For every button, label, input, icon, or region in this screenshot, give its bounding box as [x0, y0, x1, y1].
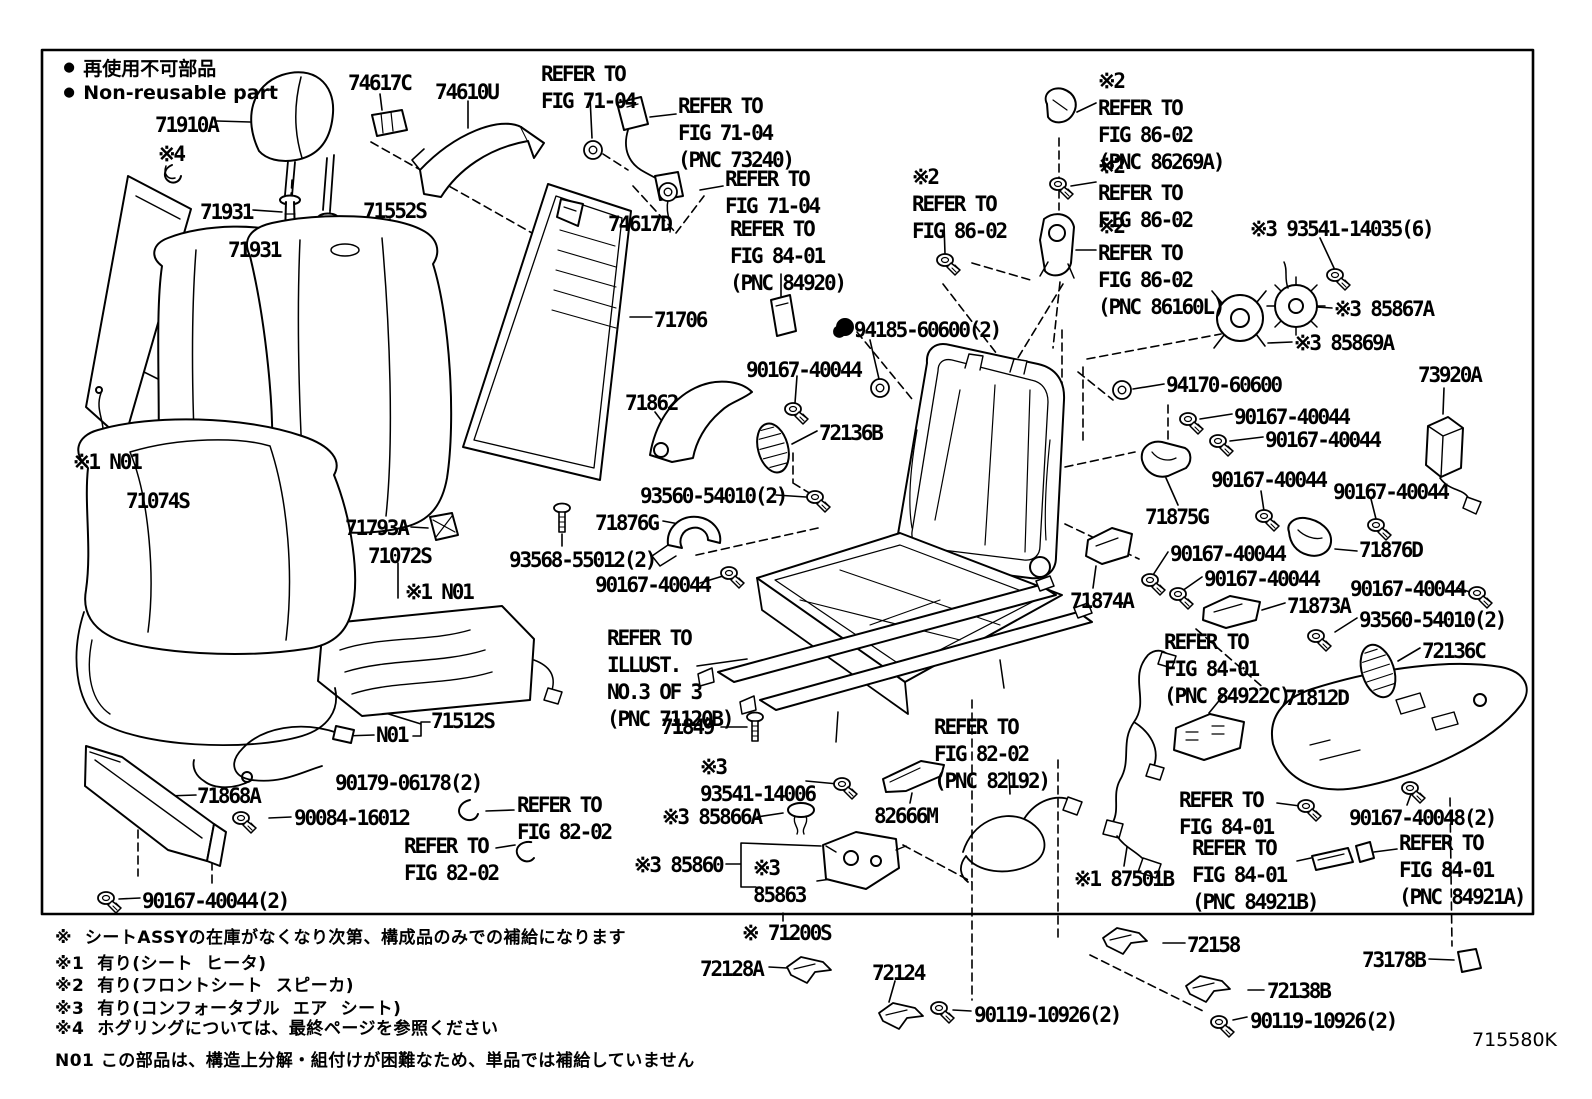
part-label-34: 93560-54010(2)	[1359, 607, 1505, 634]
roof-strap-drawing	[412, 124, 544, 197]
part-label-67: 90084-16012	[294, 805, 409, 832]
screw-icon	[1308, 630, 1331, 651]
part-label-64: N01	[376, 722, 407, 749]
seatback-board-drawing	[463, 184, 631, 480]
part-label-1: ※4	[158, 141, 184, 168]
legend-row-en: ● Non-reusable part	[64, 80, 278, 105]
non-reusable-bullet-icon: ●	[64, 84, 74, 101]
screw-icon	[98, 892, 121, 913]
screw-icon	[931, 1002, 954, 1023]
note-availability: ※ シートASSYの在庫がなくなり次第、構成品のみでの補給になります	[55, 923, 626, 948]
screw-icon	[1256, 510, 1279, 531]
part-label-61: 82666M	[874, 803, 937, 830]
part-label-13: ● 94185-60600(2)	[833, 317, 1000, 344]
knob-84921B-drawing	[1312, 848, 1353, 870]
heater-mat-drawing	[318, 606, 562, 716]
bracket-71873A-drawing	[1203, 596, 1260, 628]
part-label-3: 71931	[228, 237, 280, 264]
part-label-43: 71862	[625, 390, 677, 417]
screw-icon	[785, 403, 808, 424]
clip-72138B-drawing	[1186, 976, 1230, 1002]
part-label-21: 73920A	[1418, 362, 1481, 389]
part-label-70: 90167-40044(2)	[142, 888, 288, 915]
screw-icon	[1469, 587, 1492, 608]
part-label-35: 72136C	[1422, 638, 1485, 665]
part-label-68: REFER TO FIG 82-02	[517, 792, 611, 846]
part-label-74: 90119-10926(2)	[974, 1002, 1120, 1029]
screw-icon	[1050, 178, 1073, 199]
part-label-52: 71793A	[345, 515, 408, 542]
screw-icon	[1210, 435, 1233, 456]
grommet-icon	[871, 379, 889, 397]
part-label-62: REFER TO FIG 82-02 (PNC 82192)	[934, 714, 1049, 795]
clip-72124-drawing	[879, 1003, 923, 1029]
screw-icon	[1142, 574, 1165, 595]
air-pump-85860-drawing	[823, 832, 906, 889]
part-label-58: ※3 85866A	[662, 804, 761, 831]
part-label-44: 90167-40044	[746, 357, 861, 384]
screw-icon	[1402, 782, 1425, 803]
part-label-25: 90167-40044	[1211, 467, 1326, 494]
speaker-86269A-drawing	[1046, 88, 1076, 122]
clip-72128A-drawing	[787, 957, 831, 983]
part-label-38: REFER TO FIG 84-01	[1179, 787, 1273, 841]
part-label-56: 71849	[661, 714, 713, 741]
clip-72158-drawing	[1103, 928, 1147, 954]
legend-jp-text: 再使用不可部品	[83, 54, 216, 81]
part-label-19: ※3 85867A	[1334, 296, 1433, 323]
part-label-22: 94170-60600	[1166, 372, 1281, 399]
part-label-69: REFER TO FIG 82-02	[404, 833, 498, 887]
grommet-icon	[584, 141, 602, 159]
part-label-72: 72128A	[700, 956, 763, 983]
note-n01: N01 この部品は、構造上分解・組付けが困難なため、単品では補給していません	[55, 1046, 695, 1071]
part-label-17: ※2 REFER TO FIG 86-02 (PNC 86160L)	[1098, 213, 1223, 321]
knob-84921A-drawing	[1356, 842, 1374, 862]
part-label-40: REFER TO FIG 84-01 (PNC 84921B)	[1192, 835, 1317, 916]
grommet-icon	[659, 183, 677, 201]
part-label-33: 90167-40044	[1350, 576, 1465, 603]
part-label-18: ※3 93541-14035(6)	[1250, 216, 1433, 243]
part-label-50: ※1 N01	[73, 449, 141, 476]
clip-74617C-drawing	[372, 110, 407, 136]
screw-icon	[1180, 413, 1203, 434]
part-label-76: 72138B	[1267, 978, 1330, 1005]
part-label-48: 93568-55012(2)	[509, 547, 655, 574]
part-label-8: REFER TO FIG 71-04	[725, 166, 819, 220]
part-label-26: 90167-40044	[1333, 479, 1448, 506]
part-label-30: 71876D	[1359, 537, 1422, 564]
side-shield-drawing	[1272, 664, 1527, 789]
part-label-77: 90119-10926(2)	[1250, 1008, 1396, 1035]
parts-catalog-page: ● 再使用不可部品 ● Non-reusable part 71910A※471…	[0, 0, 1592, 1099]
connector-84922C-drawing	[1174, 714, 1244, 760]
hook-71876G-drawing	[652, 517, 720, 566]
part-label-28: 90167-40044	[1170, 541, 1285, 568]
part-label-59: ※3 85860	[634, 852, 723, 879]
part-label-9: 74617D	[608, 211, 671, 238]
screw-icon	[1170, 588, 1193, 609]
part-label-65: 90179-06178(2)	[335, 770, 481, 797]
part-label-5: 74610U	[435, 79, 498, 106]
part-label-6: REFER TO FIG 71-04	[541, 61, 635, 115]
part-label-45: 72136B	[819, 420, 882, 447]
cup-71876D-drawing	[1288, 518, 1331, 556]
part-label-46: 93560-54010(2)	[640, 483, 786, 510]
part-label-39: 90167-40048(2)	[1349, 805, 1495, 832]
part-label-12: 71706	[654, 307, 706, 334]
part-label-4: 74617C	[348, 70, 411, 97]
part-label-57: ※3 93541-14006	[700, 754, 815, 808]
part-label-66: 71868A	[197, 783, 260, 810]
part-label-27: 71875G	[1145, 504, 1208, 531]
part-label-0: 71910A	[155, 112, 218, 139]
part-label-71: ※ 71200S	[742, 920, 831, 947]
part-label-31: 71874A	[1070, 588, 1133, 615]
part-label-53: 71072S	[368, 543, 431, 570]
seat-wire-drawing	[193, 726, 354, 787]
part-label-60: ※3 85863	[753, 855, 805, 909]
part-label-10: REFER TO FIG 84-01 (PNC 84920)	[730, 216, 845, 297]
part-label-51: 71074S	[126, 488, 189, 515]
part-label-49: 90167-40044	[595, 572, 710, 599]
grommet-icon	[1113, 381, 1131, 399]
legend-en-text: Non-reusable part	[83, 82, 278, 104]
clip-73178B-drawing	[1458, 949, 1481, 972]
part-label-54: ※1 N01	[405, 579, 473, 606]
part-label-47: 71876G	[595, 510, 658, 537]
harness-82192-drawing	[961, 797, 1082, 882]
sensor-84920-drawing	[771, 295, 796, 336]
grille-72136B-drawing	[752, 420, 794, 476]
bracket-86160L-drawing	[1040, 214, 1074, 278]
legend: ● 再使用不可部品 ● Non-reusable part	[64, 55, 278, 105]
screw-icon	[1211, 1016, 1234, 1037]
part-label-41: REFER TO FIG 84-01 (PNC 84921A)	[1399, 830, 1524, 911]
part-label-2: 71931	[200, 199, 252, 226]
screw-icon	[233, 812, 256, 833]
screw-icon	[937, 254, 960, 275]
part-label-29: 90167-40044	[1204, 566, 1319, 593]
bolt-icon	[554, 504, 570, 533]
legend-row-jp: ● 再使用不可部品	[64, 55, 278, 80]
screw-icon	[834, 778, 857, 799]
figure-code: 715580K	[1472, 1029, 1557, 1051]
bolt-icon	[747, 713, 763, 742]
clip-fig82-right-drawing	[459, 800, 478, 820]
screw-icon	[721, 567, 744, 588]
clip-71793A-drawing	[430, 513, 458, 540]
part-85867A-drawing	[1267, 262, 1325, 335]
part-label-11: 71552S	[363, 198, 426, 225]
part-label-36: 71812D	[1285, 685, 1348, 712]
part-label-37: REFER TO FIG 84-01 (PNC 84922C)	[1164, 629, 1289, 710]
screw-icon	[1327, 269, 1350, 290]
part-label-42: ※1 87501B	[1074, 866, 1173, 893]
part-label-32: 71873A	[1287, 593, 1350, 620]
bracket-71874A-drawing	[1086, 528, 1132, 564]
part-label-14: ※2 REFER TO FIG 86-02	[912, 164, 1006, 245]
note-4-hog-ring: ※4 ホグリングについては、最終ページを参照ください	[55, 1014, 499, 1039]
part-label-73: 72124	[872, 960, 924, 987]
part-label-75: 72158	[1187, 932, 1239, 959]
part-label-20: ※3 85869A	[1294, 330, 1393, 357]
part-label-78: 73178B	[1362, 947, 1425, 974]
screw-icon	[1298, 800, 1321, 821]
non-reusable-bullet-icon: ●	[64, 59, 74, 76]
part-label-7: REFER TO FIG 71-04 (PNC 73240)	[678, 93, 793, 174]
bracket-71875G-drawing	[1142, 442, 1191, 477]
screw-icon	[807, 491, 830, 512]
part-label-63: 71512S	[431, 708, 494, 735]
part-label-24: 90167-40044	[1265, 427, 1380, 454]
note-2-speaker: ※2 有り(フロントシート スピーカ)	[55, 971, 354, 996]
